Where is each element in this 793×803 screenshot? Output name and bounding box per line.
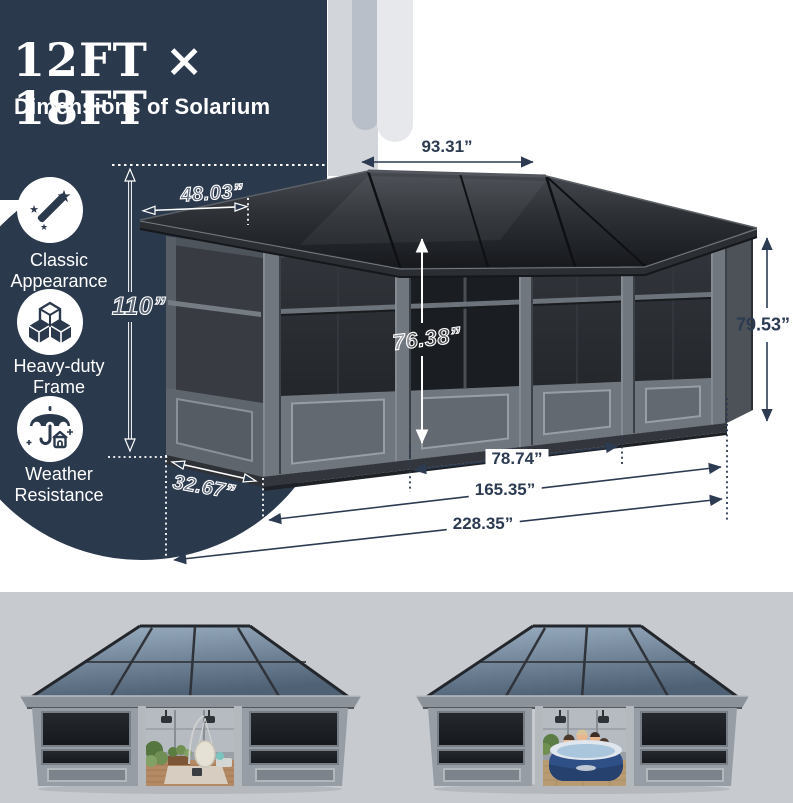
svg-text:★: ★ [40,223,48,233]
dim-label-total-length: 228.35” [447,514,520,534]
dim-label-total-height: 110” [112,293,166,322]
cubes-icon [17,289,83,355]
decor-bars [328,0,413,176]
product-photo-furniture [18,598,363,796]
umbrella-house-icon [17,396,83,462]
dim-label-door-span: 78.74” [485,449,548,469]
photo-strip [0,592,793,803]
page-subtitle: Dimensions of Solarium [14,94,334,120]
svg-text:★: ★ [56,187,71,207]
feature-label-heavy-duty-frame: Heavy-dutyFrame [0,356,118,398]
solarium-dimensions-infographic: 12FT × 18FT Dimensions of Solarium ★ ★ ★… [0,0,793,803]
dim-label-ridge-length: 93.31” [421,137,472,157]
dim-label-front-length: 165.35” [469,480,542,500]
feature-label-weather-resistance: WeatherResistance [0,464,118,506]
feature-label-classic-appearance: ClassicAppearance [0,250,118,292]
svg-text:★: ★ [29,203,39,216]
dim-label-wall-height: 79.53” [736,315,790,336]
magic-wand-icon: ★ ★ ★ [17,177,83,243]
product-photo-hot-tub [415,598,750,796]
dim-label-roof-side: 48.03” [180,180,245,207]
